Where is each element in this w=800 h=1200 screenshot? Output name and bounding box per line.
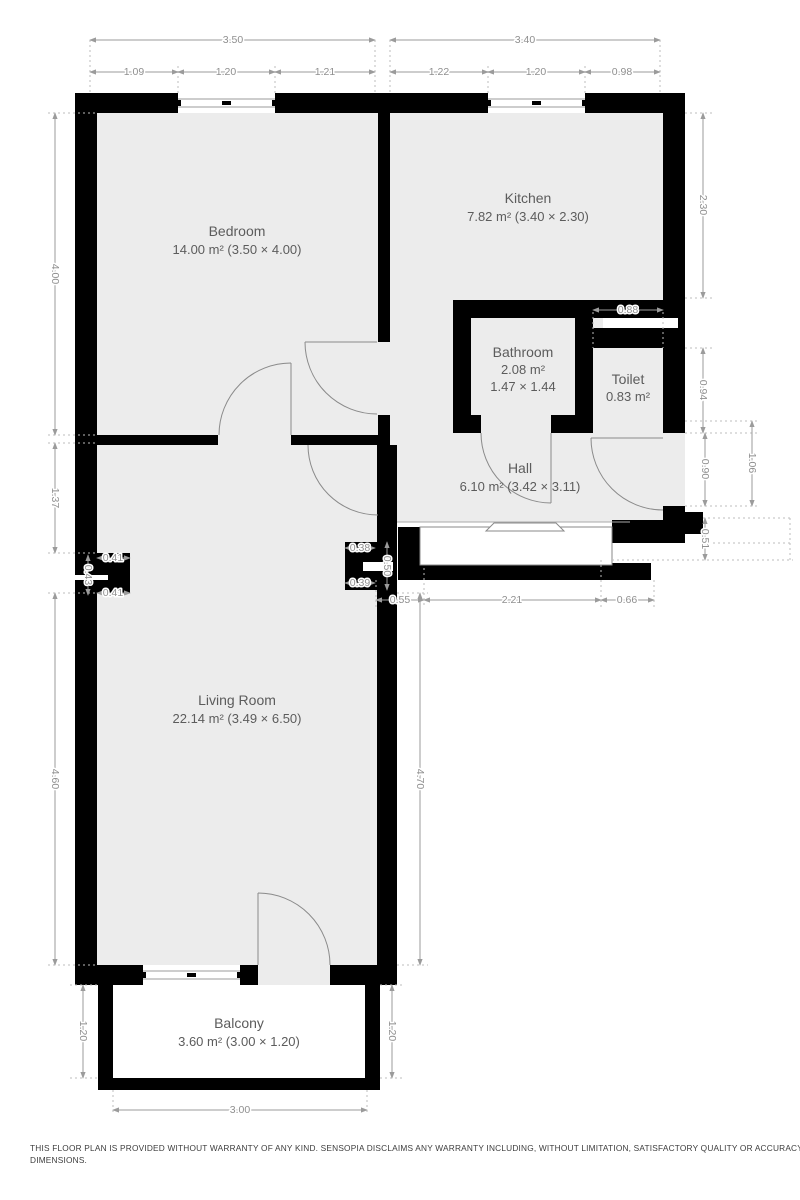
- bathroom-name: Bathroom: [493, 344, 554, 360]
- dim-balcony-height-left: 1.20: [77, 1021, 89, 1042]
- dim-kitchen-height: 2.30: [697, 195, 709, 216]
- balcony-area: 3.60 m² (3.00 × 1.20): [178, 1034, 300, 1049]
- footer-disclaimer: THIS FLOOR PLAN IS PROVIDED WITHOUT WARR…: [30, 1143, 800, 1165]
- dim-hall-strip: 1.37: [49, 488, 61, 509]
- kitchen-window: [488, 93, 585, 113]
- toilet-duct-slot: [603, 318, 678, 328]
- kitchen-name: Kitchen: [505, 190, 552, 206]
- dim-living-height-right: 4.70: [414, 769, 426, 790]
- kitchen-area: 7.82 m² (3.40 × 2.30): [467, 209, 589, 224]
- dim-kitchen-seg-1: 1.22: [429, 66, 450, 78]
- dim-kitchen-seg-2: 1.20: [526, 66, 547, 78]
- disclaimer-line-2: DIMENSIONS.: [30, 1155, 87, 1165]
- dim-entry-total: 1.06: [746, 453, 758, 474]
- toilet-name: Toilet: [612, 371, 645, 387]
- dim-entry-left: 0.55: [390, 594, 411, 606]
- entry-door-sill: [486, 523, 564, 531]
- dim-west-pier-height: 0.43: [82, 565, 94, 586]
- toilet-area: 0.83 m²: [606, 389, 651, 404]
- dim-east-pier-bottom: 0.39: [350, 577, 371, 589]
- dim-kitchen-seg-3: 0.98: [612, 66, 633, 78]
- dim-bedroom-seg-3: 1.21: [315, 66, 336, 78]
- bathroom-area: 2.08 m²: [501, 362, 546, 377]
- dim-west-pier-bottom: 0.41: [103, 587, 124, 599]
- living-room-area: 22.14 m² (3.49 × 6.50): [173, 711, 302, 726]
- dim-below-entry: 0.51: [699, 529, 711, 550]
- entry-door-gap: [663, 433, 685, 506]
- balcony-name: Balcony: [214, 1015, 264, 1031]
- living-room-name: Living Room: [198, 692, 276, 708]
- bedroom-name: Bedroom: [209, 223, 266, 239]
- dim-entry-landing: 2.21: [502, 594, 523, 606]
- dim-entry-door: 0.90: [699, 459, 711, 480]
- bedroom-window: [178, 93, 275, 113]
- dim-kitchen-width: 3.40: [515, 34, 536, 46]
- corridor-door-gap: [378, 342, 390, 415]
- balcony-door-gap: [258, 965, 330, 985]
- dim-balcony-width: 3.00: [230, 1104, 251, 1116]
- dim-west-pier-top: 0.41: [103, 552, 124, 564]
- hall-area: 6.10 m² (3.42 × 3.11): [460, 479, 581, 494]
- dim-living-height-left: 4.60: [49, 769, 61, 790]
- dim-east-pier-height: 0.50: [381, 556, 393, 577]
- floor-plan-canvas: 3.50 3.40 1.09 1.20 1.21 1.22 1.20 0.98 …: [0, 0, 800, 1200]
- dim-balcony-height-right: 1.20: [386, 1021, 398, 1042]
- dim-bedroom-height: 4.00: [49, 264, 61, 285]
- disclaimer-line-1: THIS FLOOR PLAN IS PROVIDED WITHOUT WARR…: [30, 1143, 800, 1153]
- landing-floor: [420, 527, 612, 565]
- floor-plan-page: 3.50 3.40 1.09 1.20 1.21 1.22 1.20 0.98 …: [0, 0, 800, 1200]
- balcony-floor: [112, 985, 365, 1078]
- bathroom-size: 1.47 × 1.44: [490, 379, 555, 394]
- living-room-window: [143, 965, 240, 985]
- entrance-landing: [397, 522, 630, 565]
- dim-toilet-width: 0.88: [618, 304, 639, 316]
- dim-east-pier-top: 0.38: [350, 542, 371, 554]
- bedroom-door-gap: [218, 435, 291, 445]
- dim-entry-right: 0.66: [617, 594, 638, 606]
- dim-bedroom-width: 3.50: [223, 34, 244, 46]
- dim-bedroom-seg-1: 1.09: [124, 66, 145, 78]
- dim-toilet-height: 0.94: [697, 380, 709, 401]
- hall-name: Hall: [508, 460, 532, 476]
- bedroom-area: 14.00 m² (3.50 × 4.00): [173, 242, 302, 257]
- dim-bedroom-seg-2: 1.20: [216, 66, 237, 78]
